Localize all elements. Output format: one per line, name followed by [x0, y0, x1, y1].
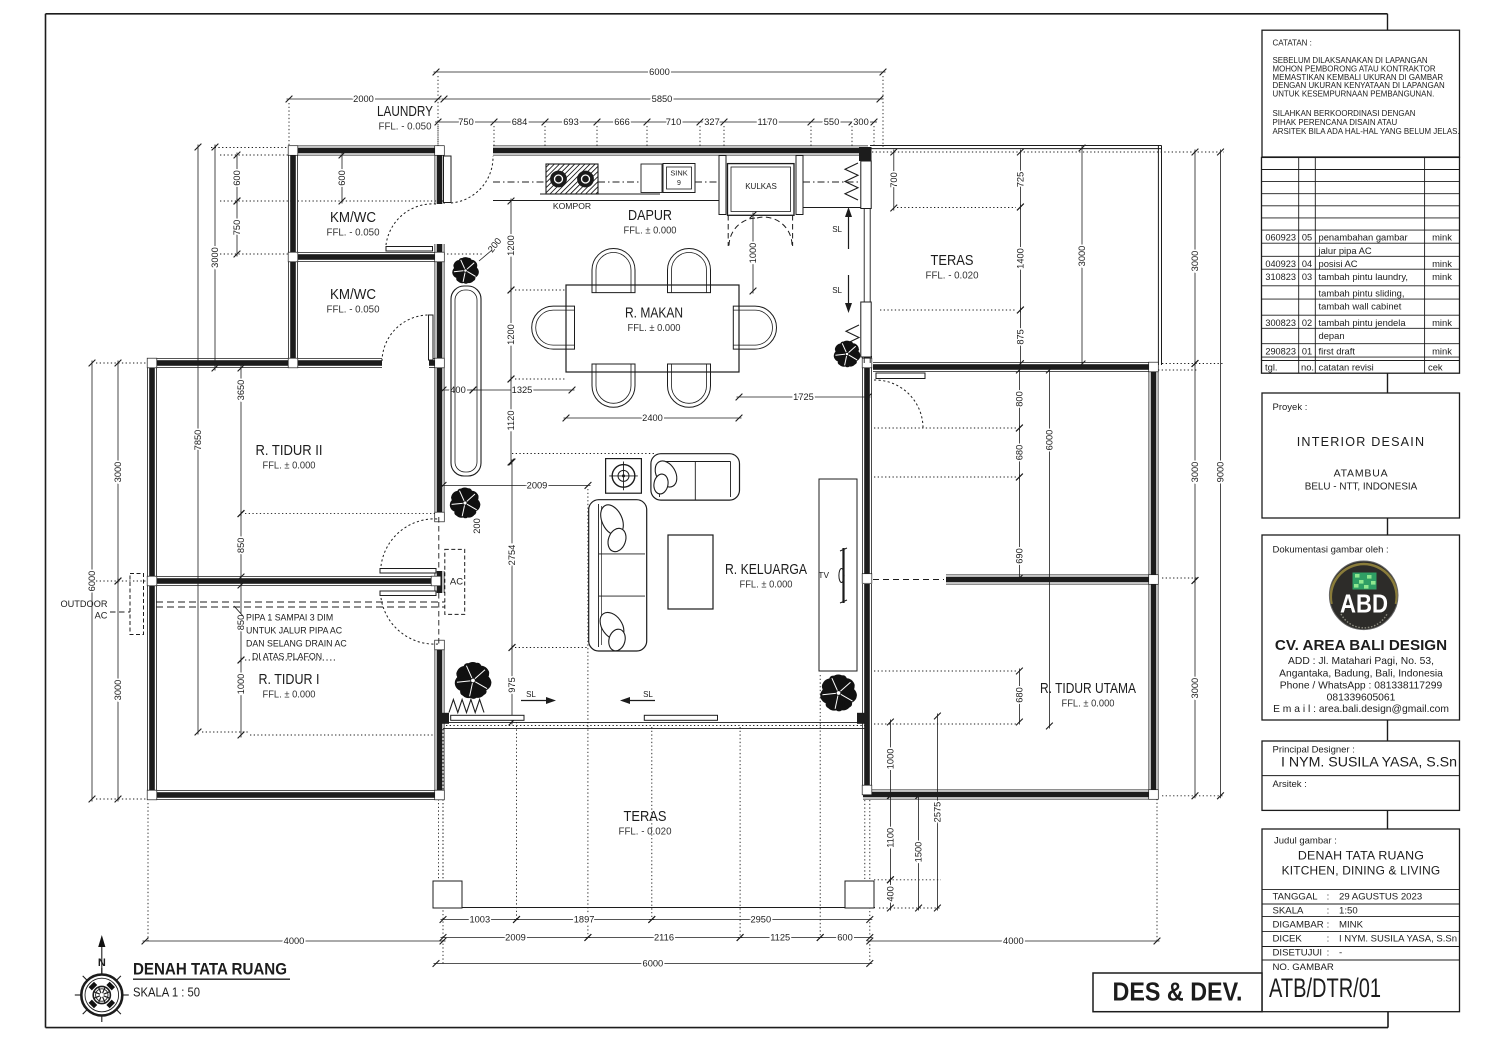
- svg-text:first draft: first draft: [1319, 345, 1356, 356]
- svg-text:I NYM. SUSILA YASA, S.Sn: I NYM. SUSILA YASA, S.Sn: [1281, 755, 1457, 771]
- svg-text:750: 750: [458, 117, 474, 127]
- svg-text:SKALA 1 : 50: SKALA 1 : 50: [133, 985, 200, 1000]
- svg-text:3000: 3000: [1190, 462, 1200, 483]
- svg-text:5850: 5850: [652, 94, 673, 104]
- svg-text:600: 600: [232, 170, 242, 186]
- svg-text::: :: [1327, 920, 1330, 931]
- svg-text:400: 400: [886, 886, 896, 902]
- svg-text:SINK: SINK: [670, 169, 687, 178]
- svg-text:710: 710: [666, 117, 682, 127]
- svg-text:680: 680: [1015, 687, 1025, 703]
- svg-text:TV: TV: [818, 570, 829, 580]
- svg-text:R. TIDUR UTAMA: R. TIDUR UTAMA: [1040, 681, 1136, 697]
- svg-text:3000: 3000: [1190, 251, 1200, 272]
- svg-text::: :: [1327, 934, 1330, 945]
- svg-text:05: 05: [1302, 233, 1312, 243]
- svg-text:690: 690: [1015, 548, 1025, 564]
- svg-text:CATATAN :: CATATAN :: [1273, 39, 1312, 48]
- svg-text:ADD : Jl. Matahari Pagi, No. 5: ADD : Jl. Matahari Pagi, No. 53,: [1288, 656, 1434, 667]
- svg-text:01: 01: [1302, 346, 1312, 356]
- svg-text:DICEK: DICEK: [1273, 934, 1303, 945]
- svg-text:4000: 4000: [1003, 936, 1024, 946]
- svg-text:N: N: [98, 957, 106, 969]
- svg-text:1500: 1500: [914, 842, 924, 863]
- svg-text:2009: 2009: [505, 933, 526, 943]
- svg-text:Phone / WhatsApp : 081338117: Phone / WhatsApp : 081338117299: [1280, 681, 1443, 692]
- svg-text:03: 03: [1302, 272, 1312, 282]
- svg-text:KM/WC: KM/WC: [330, 287, 376, 303]
- svg-text:tgl.: tgl.: [1265, 362, 1278, 373]
- svg-text:2575: 2575: [933, 802, 943, 823]
- svg-text:FFL. ± 0.000: FFL. ± 0.000: [628, 323, 681, 334]
- svg-text:AC: AC: [95, 611, 108, 621]
- svg-text:29 AGUSTUS 2023: 29 AGUSTUS 2023: [1339, 892, 1422, 903]
- svg-text:700: 700: [889, 172, 899, 188]
- svg-text:310823: 310823: [1265, 272, 1296, 282]
- svg-text:9: 9: [677, 180, 681, 187]
- svg-text:UNTUK KESEMPURNAAN PEMBANGUNAN: UNTUK KESEMPURNAAN PEMBANGUNAN.: [1273, 90, 1435, 99]
- svg-text:4000: 4000: [284, 936, 305, 946]
- svg-text:060923: 060923: [1265, 233, 1296, 243]
- svg-text:1:50: 1:50: [1339, 906, 1358, 917]
- svg-text:jalur pipa AC: jalur pipa AC: [1318, 245, 1372, 256]
- svg-text:693: 693: [563, 117, 579, 127]
- svg-text:FFL. - 0.050: FFL. - 0.050: [327, 228, 380, 239]
- svg-text:2950: 2950: [750, 915, 771, 925]
- svg-text:1100: 1100: [886, 828, 896, 848]
- svg-text:E m a i l : area.bali.design@g: E m a i l : area.bali.design@gmail.com: [1273, 704, 1449, 715]
- svg-text:1003: 1003: [469, 915, 490, 925]
- svg-text:1897: 1897: [574, 915, 595, 925]
- svg-text:FFL. ± 0.000: FFL. ± 0.000: [263, 690, 316, 701]
- svg-text:FFL. - 0.050: FFL. - 0.050: [379, 122, 432, 133]
- svg-text:penambahan gambar: penambahan gambar: [1319, 232, 1408, 243]
- svg-text:290823: 290823: [1265, 346, 1296, 356]
- svg-text:9000: 9000: [1216, 462, 1226, 483]
- svg-text:catatan revisi: catatan revisi: [1319, 362, 1374, 373]
- svg-text:081339605061: 081339605061: [1327, 693, 1396, 704]
- svg-text:no.: no.: [1301, 362, 1314, 373]
- svg-text:1170: 1170: [758, 117, 778, 127]
- svg-text:SILAHKAN BERKOORDINASI DENGAN: SILAHKAN BERKOORDINASI DENGAN: [1273, 109, 1416, 118]
- svg-text:AC: AC: [450, 577, 463, 588]
- svg-text:INTERIOR DESAIN: INTERIOR DESAIN: [1297, 435, 1426, 449]
- svg-text:300: 300: [853, 117, 869, 127]
- svg-text:ATAMBUA: ATAMBUA: [1334, 468, 1389, 480]
- svg-text:MINK: MINK: [1339, 920, 1364, 931]
- svg-text:7850: 7850: [193, 430, 203, 451]
- svg-text:666: 666: [614, 117, 630, 127]
- svg-text::: :: [1327, 948, 1330, 959]
- svg-text:6000: 6000: [643, 959, 664, 969]
- svg-text:3000: 3000: [1077, 246, 1087, 267]
- svg-text:1725: 1725: [793, 392, 814, 402]
- svg-text:DAN SELANG DRAIN AC: DAN SELANG DRAIN AC: [246, 639, 347, 649]
- svg-text:mink: mink: [1432, 258, 1452, 269]
- svg-text:depan: depan: [1319, 330, 1345, 341]
- svg-text:SL: SL: [643, 690, 653, 699]
- svg-text:1120: 1120: [506, 411, 516, 431]
- svg-text:3000: 3000: [113, 462, 123, 483]
- svg-text:Angantaka, Badung, Bali, Indon: Angantaka, Badung, Bali, Indonesia: [1279, 669, 1443, 680]
- svg-text:04: 04: [1302, 259, 1312, 269]
- svg-text:02: 02: [1302, 318, 1312, 328]
- svg-text:KOMPOR: KOMPOR: [553, 201, 591, 211]
- svg-text:850: 850: [236, 538, 246, 554]
- svg-text:LAUNDRY: LAUNDRY: [377, 104, 433, 120]
- svg-text:6000: 6000: [87, 571, 97, 592]
- svg-text:TANGGAL: TANGGAL: [1273, 892, 1319, 903]
- svg-text:Dokumentasi gambar oleh :: Dokumentasi gambar oleh :: [1273, 545, 1389, 556]
- svg-text:TERAS: TERAS: [624, 809, 667, 825]
- svg-text:DENAH TATA RUANG: DENAH TATA RUANG: [133, 961, 287, 979]
- svg-text:DES & DEV.: DES & DEV.: [1113, 977, 1243, 1007]
- svg-text:ABD: ABD: [1340, 589, 1388, 619]
- svg-text:680: 680: [1015, 445, 1025, 461]
- svg-text:DENAH TATA RUANG: DENAH TATA RUANG: [1298, 849, 1424, 863]
- svg-text:Arsitek :: Arsitek :: [1273, 779, 1307, 790]
- svg-text:1000: 1000: [236, 674, 246, 695]
- svg-text:R. TIDUR II: R. TIDUR II: [256, 443, 323, 459]
- svg-text:FFL. ± 0.000: FFL. ± 0.000: [263, 461, 316, 472]
- svg-text:DIGAMBAR: DIGAMBAR: [1273, 920, 1324, 931]
- svg-text:BELU - NTT, INDONESIA: BELU - NTT, INDONESIA: [1305, 482, 1418, 493]
- svg-text:OUTDOOR: OUTDOOR: [61, 599, 108, 609]
- svg-text:tambah pintu laundry,: tambah pintu laundry,: [1319, 271, 1408, 282]
- svg-text:DI ATAS PLAFON: DI ATAS PLAFON: [252, 652, 322, 662]
- svg-text:6000: 6000: [649, 67, 670, 77]
- svg-text:400: 400: [450, 385, 466, 395]
- svg-text:1000: 1000: [748, 243, 758, 264]
- svg-text:CV. AREA BALI DESIGN: CV. AREA BALI DESIGN: [1275, 637, 1447, 654]
- svg-text:2009: 2009: [527, 481, 548, 491]
- svg-text:FFL. ± 0.000: FFL. ± 0.000: [624, 226, 677, 237]
- svg-text:850: 850: [236, 615, 246, 631]
- svg-text:300823: 300823: [1265, 318, 1296, 328]
- svg-text:600: 600: [337, 170, 347, 186]
- svg-text:2116: 2116: [654, 933, 674, 943]
- svg-text:mink: mink: [1432, 317, 1452, 328]
- svg-text:-: -: [1339, 948, 1342, 959]
- svg-text:KITCHEN, DINING & LIVING: KITCHEN, DINING & LIVING: [1282, 864, 1441, 878]
- svg-text:DAPUR: DAPUR: [628, 208, 672, 224]
- svg-text:3000: 3000: [1190, 678, 1200, 699]
- svg-text:UNTUK JALUR PIPA AC: UNTUK JALUR PIPA AC: [246, 626, 343, 636]
- svg-text:6000: 6000: [1045, 430, 1055, 451]
- svg-text:1325: 1325: [512, 385, 533, 395]
- svg-text:mink: mink: [1432, 232, 1452, 243]
- svg-text:DISETUJUI: DISETUJUI: [1273, 948, 1323, 959]
- svg-text::: :: [1327, 906, 1330, 917]
- svg-text:FFL. - 0.050: FFL. - 0.050: [327, 305, 380, 316]
- svg-text:1200: 1200: [506, 324, 516, 345]
- svg-text:Proyek :: Proyek :: [1273, 402, 1308, 413]
- svg-text:3650: 3650: [236, 380, 246, 401]
- svg-text:PIPA 1 SAMPAI 3 DIM: PIPA 1 SAMPAI 3 DIM: [246, 613, 333, 623]
- svg-text:KULKAS: KULKAS: [745, 182, 777, 191]
- svg-text:cek: cek: [1428, 362, 1443, 373]
- svg-text:SKALA: SKALA: [1273, 906, 1305, 917]
- svg-text:800: 800: [1015, 391, 1025, 407]
- svg-text:875: 875: [1016, 329, 1026, 345]
- svg-text:3000: 3000: [210, 247, 220, 268]
- svg-text:975: 975: [507, 677, 517, 693]
- svg-text:tambah wall cabinet: tambah wall cabinet: [1319, 301, 1402, 312]
- svg-text:FFL. ± 0.000: FFL. ± 0.000: [1062, 699, 1115, 710]
- svg-text:750: 750: [232, 220, 242, 236]
- svg-text:PIHAK PERENCANA DISAIN ATAU: PIHAK PERENCANA DISAIN ATAU: [1273, 118, 1398, 127]
- svg-text:R. MAKAN: R. MAKAN: [625, 306, 683, 322]
- svg-text:mink: mink: [1432, 271, 1452, 282]
- svg-text:550: 550: [824, 117, 840, 127]
- svg-text:Judul gambar :: Judul gambar :: [1274, 836, 1337, 847]
- svg-text:ATB/DTR/01: ATB/DTR/01: [1269, 973, 1381, 1003]
- svg-text:600: 600: [837, 933, 853, 943]
- svg-text:1000: 1000: [886, 749, 896, 770]
- svg-text:FFL. - 0.020: FFL. - 0.020: [926, 271, 979, 282]
- svg-text:684: 684: [512, 117, 528, 127]
- svg-text:SL: SL: [526, 690, 536, 699]
- svg-text:2400: 2400: [642, 413, 663, 423]
- svg-text::: :: [1327, 892, 1330, 903]
- svg-text:1200: 1200: [506, 235, 516, 256]
- svg-text:725: 725: [1016, 172, 1026, 188]
- svg-text:tambah pintu sliding,: tambah pintu sliding,: [1319, 287, 1405, 298]
- svg-text:tambah pintu jendela: tambah pintu jendela: [1319, 317, 1407, 328]
- svg-text:3000: 3000: [113, 680, 123, 701]
- svg-text:KM/WC: KM/WC: [330, 210, 376, 226]
- svg-text:2000: 2000: [353, 94, 374, 104]
- svg-text:I NYM. SUSILA YASA, S.Sn: I NYM. SUSILA YASA, S.Sn: [1339, 934, 1457, 945]
- svg-text:posisi AC: posisi AC: [1319, 258, 1358, 269]
- svg-text:327: 327: [704, 117, 720, 127]
- svg-text:R. TIDUR I: R. TIDUR I: [259, 672, 320, 688]
- svg-text:2754: 2754: [507, 545, 517, 566]
- svg-text:mink: mink: [1432, 345, 1452, 356]
- svg-text:FFL. - 0.020: FFL. - 0.020: [619, 827, 672, 838]
- svg-text:NO. GAMBAR: NO. GAMBAR: [1273, 962, 1334, 973]
- svg-text:TERAS: TERAS: [931, 253, 974, 269]
- svg-text:ARSITEK BILA ADA HAL-HAL YANG: ARSITEK BILA ADA HAL-HAL YANG BELUM JELA…: [1273, 127, 1460, 136]
- svg-text:200: 200: [472, 518, 482, 534]
- svg-text:SL: SL: [832, 286, 842, 295]
- svg-text:1400: 1400: [1016, 248, 1026, 269]
- svg-text:FFL. ± 0.000: FFL. ± 0.000: [740, 580, 793, 591]
- svg-text:SL: SL: [832, 225, 842, 234]
- svg-text:1125: 1125: [770, 933, 790, 943]
- svg-text:040923: 040923: [1265, 259, 1296, 269]
- svg-text:R. KELUARGA: R. KELUARGA: [725, 562, 807, 578]
